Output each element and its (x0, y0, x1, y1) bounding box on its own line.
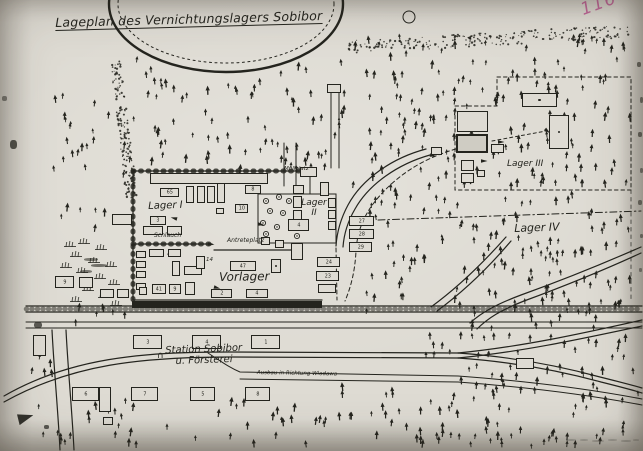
scan-speck (637, 62, 641, 67)
scan-speck (2, 96, 7, 101)
scan-speck (10, 140, 17, 149)
scan-speck (84, 258, 98, 261)
scan-speck (638, 200, 642, 205)
scan-artifacts (0, 0, 643, 451)
scanned-map-page: 65831042728292423419472434167589 Lager I… (0, 0, 643, 451)
scan-speck (566, 439, 576, 441)
scan-speck (621, 440, 631, 442)
scan-speck (592, 440, 604, 442)
scan-speck (639, 268, 642, 272)
scan-speck (580, 439, 588, 441)
scan-speck (80, 270, 92, 273)
scan-speck (608, 439, 617, 441)
scan-speck (34, 322, 42, 328)
scan-speck (638, 132, 642, 137)
scan-speck (91, 264, 107, 267)
scan-speck (633, 439, 639, 441)
scan-speck (44, 425, 49, 429)
pen-mark (15, 411, 34, 427)
